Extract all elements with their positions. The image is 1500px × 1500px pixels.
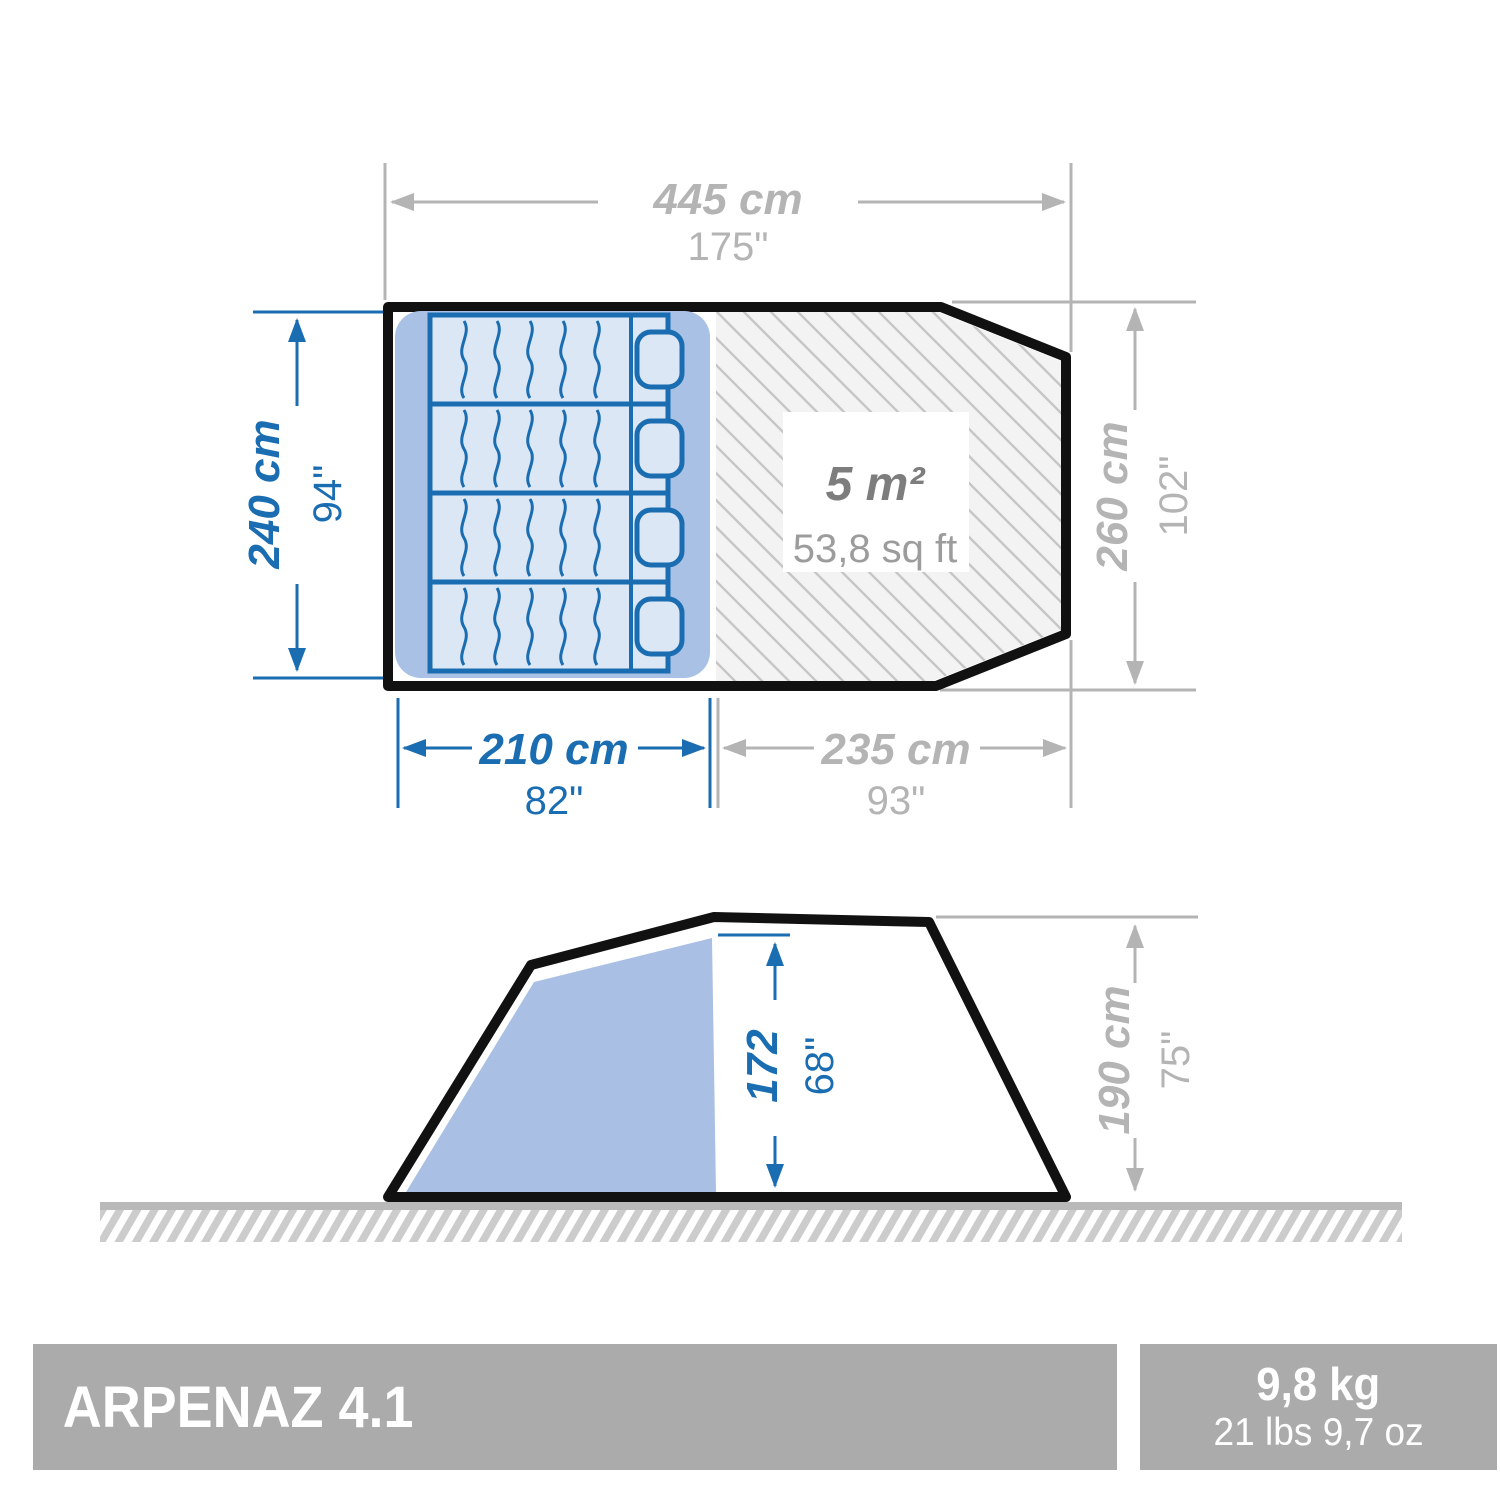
living-area-m2: 5 m²	[826, 458, 927, 511]
total-width-metric: 445 cm	[652, 175, 802, 224]
weight-metric: 9,8 kg	[1257, 1358, 1381, 1410]
living-width-metric: 235 cm	[820, 725, 970, 774]
bedroom-width-imperial: 82"	[525, 779, 584, 823]
product-weight-bar: 9,8 kg 21 lbs 9,7 oz	[1140, 1344, 1497, 1470]
ground	[100, 1202, 1402, 1242]
bedroom-profile-fill	[406, 938, 716, 1192]
diagram-canvas: 445 cm 175"	[0, 0, 1500, 1500]
living-area-label: 5 m² 53,8 sq ft	[783, 412, 969, 572]
dimension-bedroom-width: 210 cm 82"	[404, 725, 704, 823]
dimension-total-height: 190 cm 75"	[1090, 926, 1198, 1190]
dimension-living-width: 235 cm 93"	[724, 725, 1065, 823]
dimension-total-width: 445 cm 175"	[392, 175, 1064, 269]
dimension-bedroom-depth: 240 cm 94"	[240, 320, 350, 670]
interior-height-imperial: 68"	[798, 1037, 842, 1096]
interior-height-metric: 172	[738, 1029, 787, 1103]
living-area-sqft: 53,8 sq ft	[793, 527, 958, 571]
bedroom-width-metric: 210 cm	[478, 725, 628, 774]
tent-dimensions-diagram: 445 cm 175"	[0, 0, 1500, 1500]
top-view: 445 cm 175"	[240, 163, 1196, 823]
product-name-bar: ARPENAZ 4.1	[33, 1344, 1117, 1470]
total-height-imperial: 75"	[1154, 1031, 1198, 1090]
total-depth-imperial: 102"	[1152, 456, 1196, 537]
dimension-total-depth: 260 cm 102"	[1088, 309, 1196, 683]
mattresses	[430, 315, 682, 671]
total-depth-metric: 260 cm	[1088, 421, 1137, 571]
total-width-imperial: 175"	[688, 225, 769, 269]
product-name: ARPENAZ 4.1	[33, 1374, 413, 1441]
bedroom-depth-metric: 240 cm	[240, 419, 289, 569]
total-height-metric: 190 cm	[1090, 985, 1139, 1134]
living-width-imperial: 93"	[867, 779, 926, 823]
bedroom-depth-imperial: 94"	[306, 465, 350, 524]
weight-imperial: 21 lbs 9,7 oz	[1213, 1410, 1423, 1456]
side-view: 172 68" 190 cm 75"	[100, 917, 1402, 1242]
